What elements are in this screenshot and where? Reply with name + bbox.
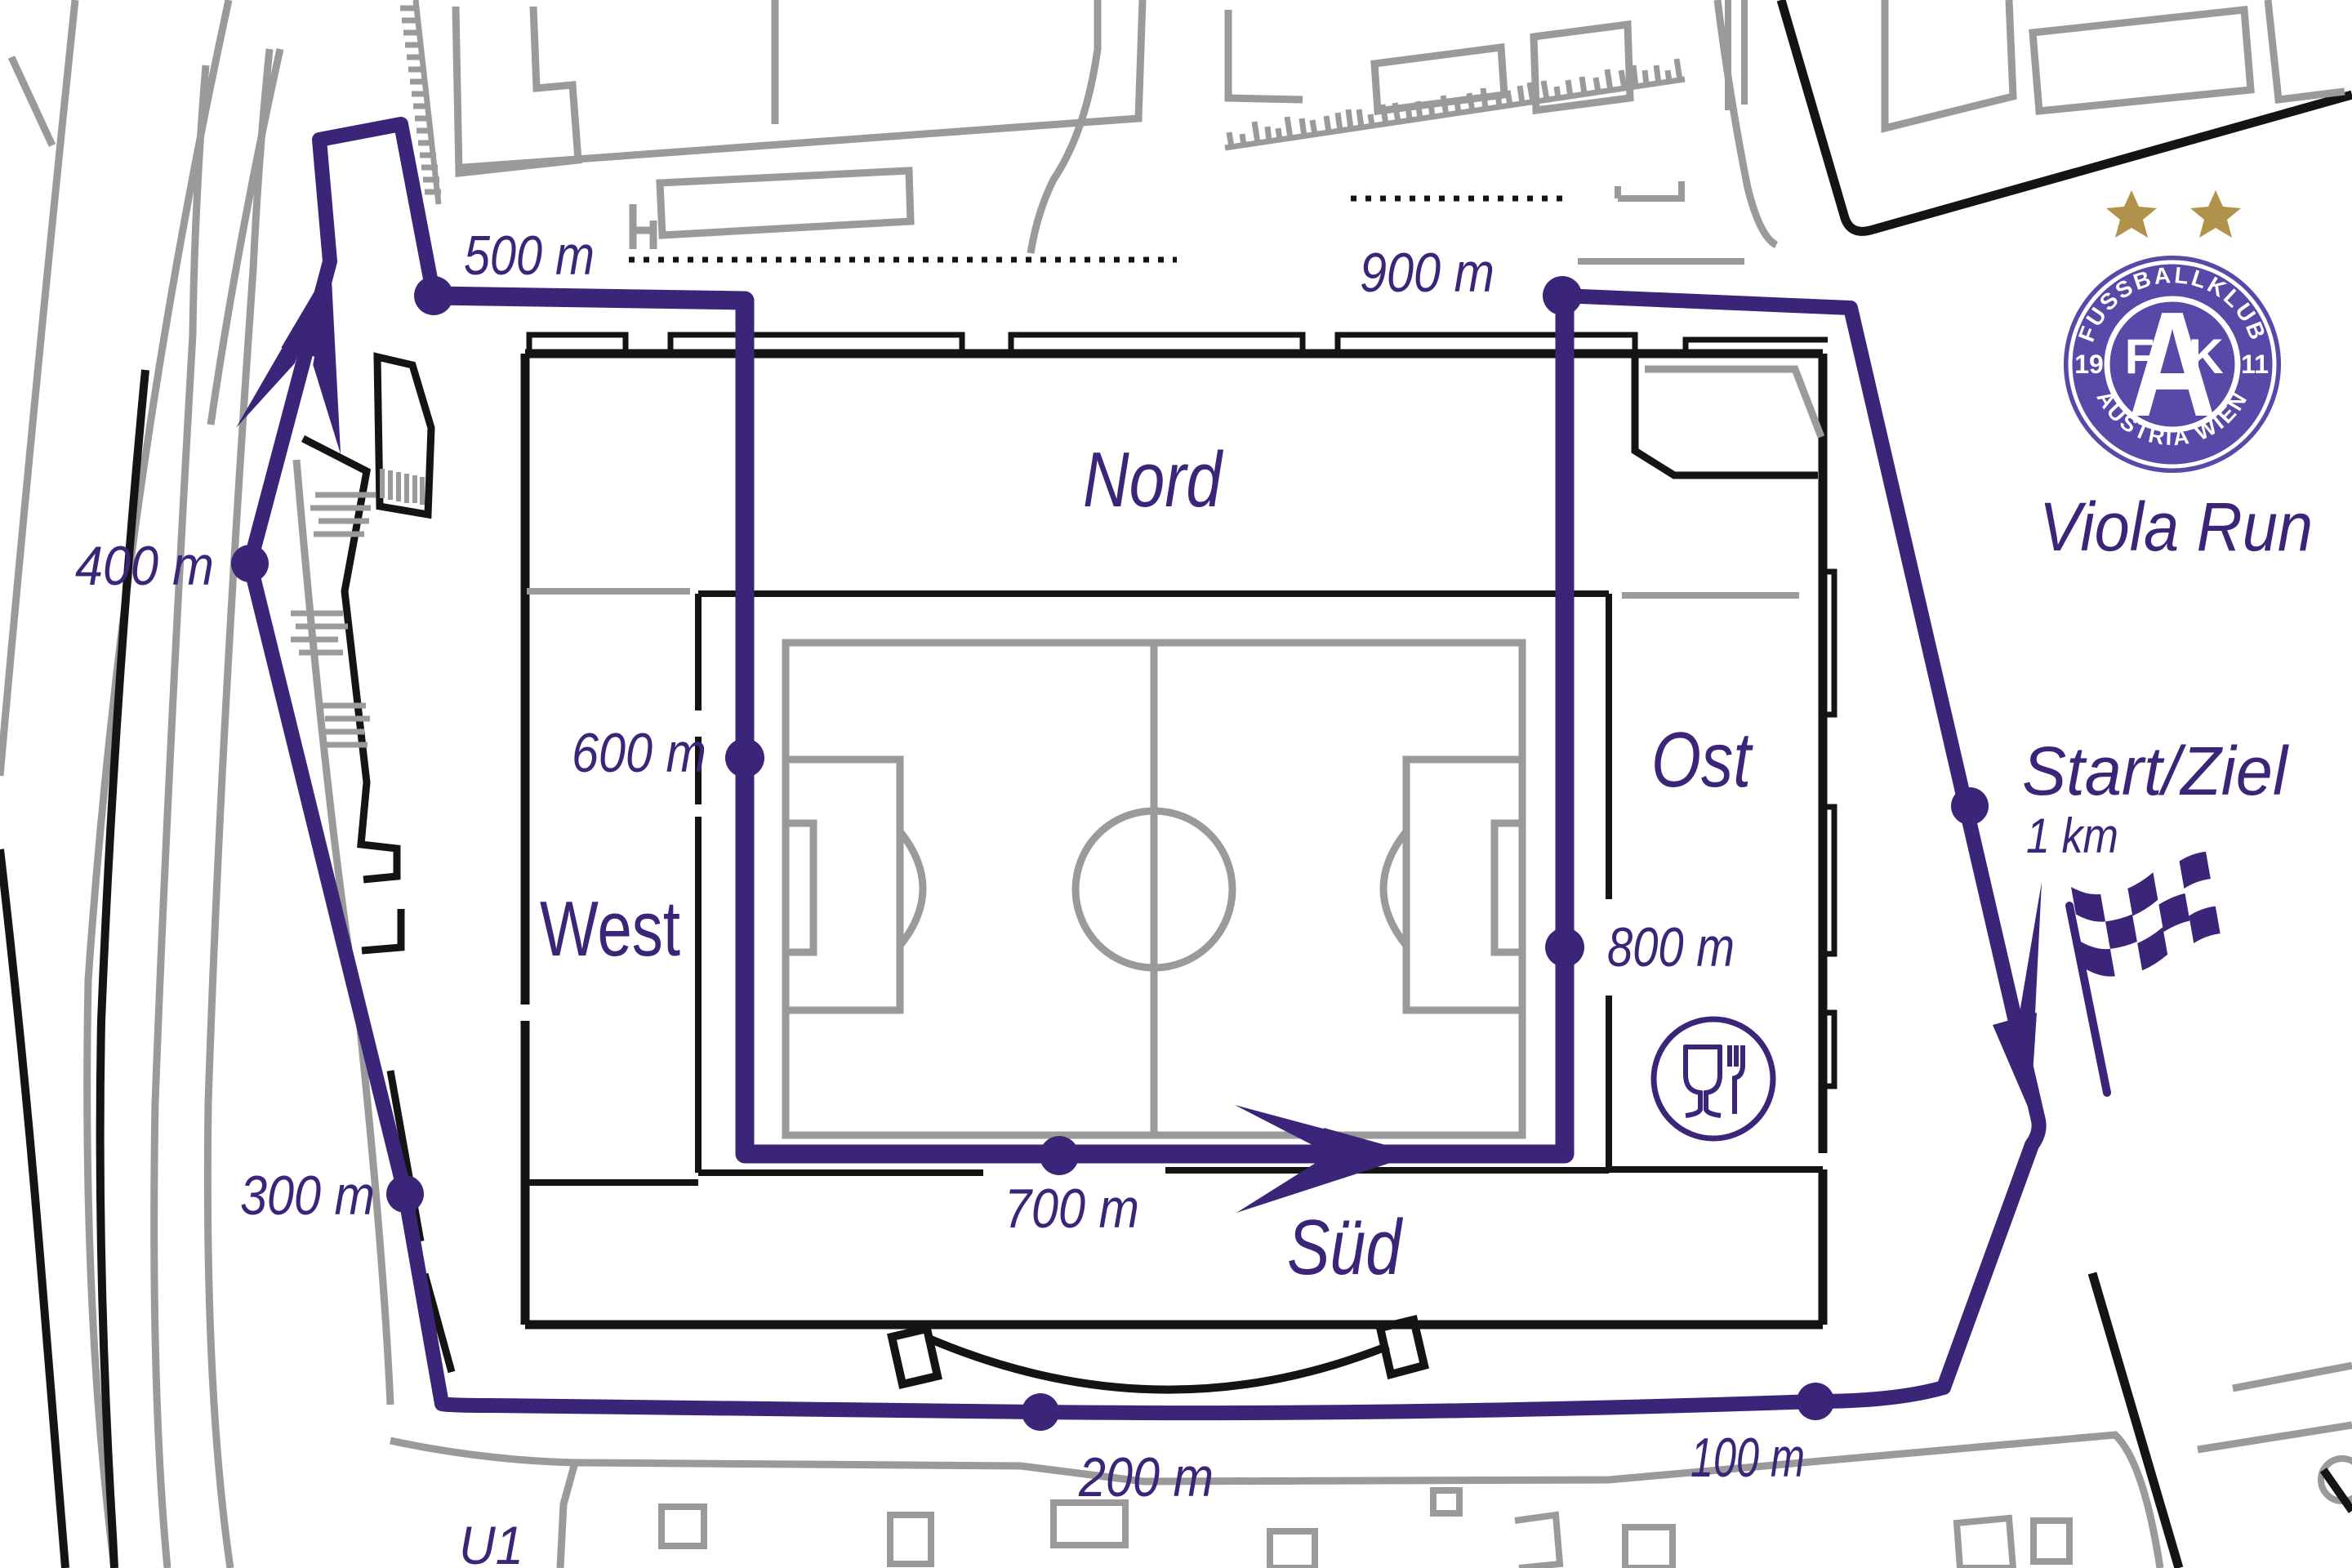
svg-text:500 m: 500 m bbox=[464, 225, 595, 287]
svg-text:Ost: Ost bbox=[1651, 716, 1753, 804]
svg-text:U1: U1 bbox=[459, 1515, 523, 1568]
svg-text:1 km: 1 km bbox=[2026, 808, 2118, 863]
svg-text:100 m: 100 m bbox=[1690, 1427, 1805, 1489]
svg-text:West: West bbox=[540, 885, 680, 973]
svg-text:F: F bbox=[2125, 329, 2155, 384]
svg-text:800 m: 800 m bbox=[1607, 916, 1735, 978]
svg-text:300 m: 300 m bbox=[240, 1165, 375, 1227]
svg-text:400 m: 400 m bbox=[75, 535, 214, 597]
svg-text:Nord: Nord bbox=[1083, 436, 1223, 523]
svg-text:Süd: Süd bbox=[1287, 1204, 1403, 1291]
svg-text:Viola Run: Viola Run bbox=[2039, 488, 2313, 565]
svg-text:11: 11 bbox=[2241, 350, 2269, 379]
svg-text:19: 19 bbox=[2074, 350, 2104, 379]
svg-text:K: K bbox=[2188, 329, 2223, 384]
svg-text:Start/Ziel: Start/Ziel bbox=[2022, 733, 2289, 809]
svg-text:700 m: 700 m bbox=[1004, 1178, 1139, 1240]
svg-text:900 m: 900 m bbox=[1360, 242, 1494, 304]
svg-text:600 m: 600 m bbox=[572, 722, 706, 784]
svg-text:200 m: 200 m bbox=[1078, 1446, 1214, 1508]
